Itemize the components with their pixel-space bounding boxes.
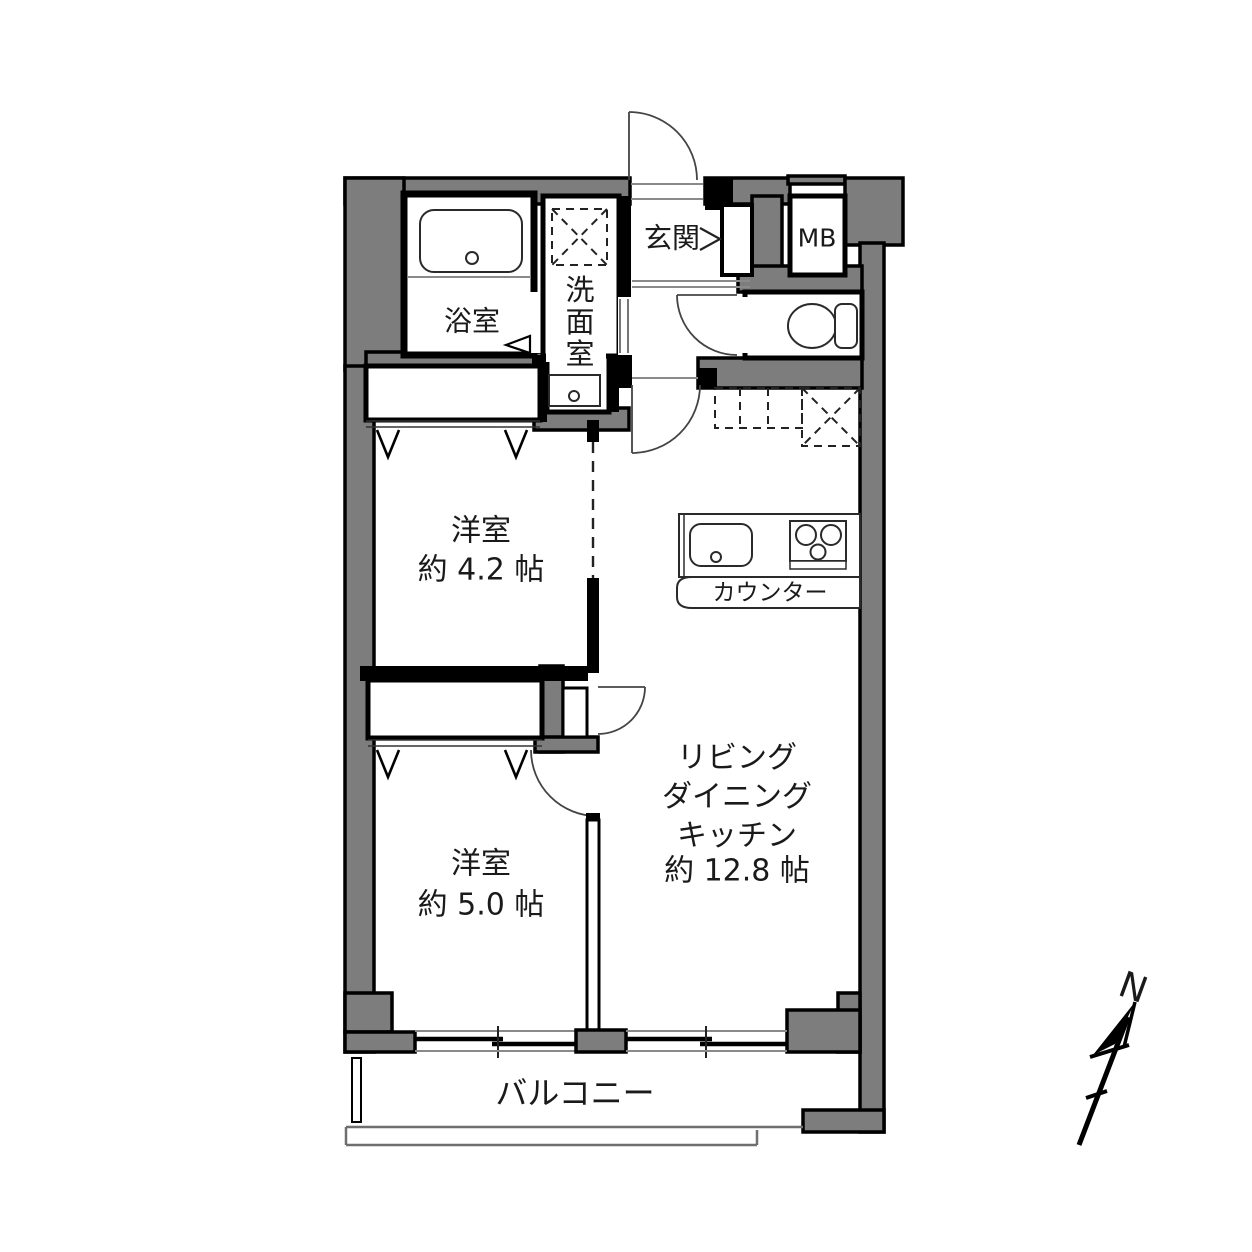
toilet-door-arc	[677, 295, 737, 355]
bedroom2-size: 約 5.0 帖	[418, 888, 545, 923]
washroom-label-char1: 洗	[565, 273, 594, 307]
stove-panel	[790, 561, 846, 569]
kitchen-sink-drain-icon	[711, 552, 721, 562]
wall-balcony-se-block	[803, 1110, 884, 1132]
washroom-label-char3: 室	[565, 337, 594, 371]
wall-toilet-bottom	[698, 358, 862, 388]
wall-corner-block-ne	[845, 178, 903, 245]
toilet-door-gap	[739, 297, 749, 353]
toilet-tank-icon	[835, 304, 857, 348]
kitchen: カウンター	[677, 514, 860, 608]
shoe-cabinet-marker-icon	[700, 228, 720, 250]
bathtub-drain-icon	[466, 252, 478, 264]
entrance-door-arc	[629, 112, 697, 180]
bedroom1-closet-hanger-icon-a	[377, 430, 399, 457]
washbasin-drain-icon	[569, 391, 579, 401]
stove-burner-icon-a	[796, 525, 816, 545]
floor-plan-drawing: 浴室 洗 面 室 玄関 MB	[0, 0, 1252, 1252]
bedroom2-closet-hanger-icon-b	[505, 750, 527, 777]
ldk: カウンター リビング ダイニング キッチン 約 12.8 帖	[632, 378, 860, 889]
bedroom2-closet-outline	[368, 680, 542, 738]
shoe-cabinet-icon	[722, 205, 752, 275]
stove-burner-icon-b	[821, 525, 841, 545]
meter-box: MB	[790, 196, 845, 275]
balcony: バルコニー	[346, 1058, 803, 1145]
ldk-label-line4: 約 12.8 帖	[664, 854, 810, 889]
bedroom2-label: 洋室	[451, 847, 511, 882]
windows	[415, 1026, 787, 1058]
bathroom-label: 浴室	[444, 305, 500, 338]
wall-bottom-left-step2	[345, 1032, 415, 1052]
bedroom1-label: 洋室	[451, 514, 511, 549]
bedroom2-door-arc	[531, 750, 597, 816]
entrance-label: 玄関	[644, 222, 700, 255]
ldk-label-line1: リビング	[677, 741, 797, 776]
wall-bottom-left-step1	[345, 993, 392, 1032]
wall-left-top	[345, 178, 404, 370]
bedroom1-closet-hanger-icon-b	[505, 430, 527, 457]
floor-plan-page: 浴室 洗 面 室 玄関 MB	[0, 0, 1252, 1252]
storage-pocket	[563, 687, 645, 737]
stove-burner-icon-c	[811, 545, 826, 560]
storage-pocket-outline	[563, 688, 587, 737]
room-bathroom: 浴室	[404, 194, 541, 355]
wall-washroom-hall-lower	[617, 355, 632, 388]
north-arrow-crossbar	[1090, 1045, 1129, 1057]
north-arrow-shaft	[1079, 1017, 1128, 1145]
north-arrow: N	[1079, 964, 1153, 1145]
wall-mb-front	[788, 176, 845, 184]
ldk-label-line2: ダイニング	[662, 780, 812, 815]
counter-label: カウンター	[713, 580, 828, 606]
storage-door-arc	[598, 687, 645, 734]
wall-bottom-right-block	[787, 1010, 860, 1052]
kitchen-cupboard-area	[715, 388, 802, 428]
refrigerator-area	[802, 388, 860, 446]
bedroom1-closet-outline	[366, 366, 540, 420]
meter-box-label: MB	[798, 224, 837, 253]
bedroom1-size: 約 4.2 帖	[418, 553, 545, 588]
bedroom2-ldk-partition	[587, 820, 599, 1032]
balcony-label: バルコニー	[495, 1074, 654, 1112]
window-center-pillar	[576, 1030, 626, 1052]
toilet-icon	[788, 304, 836, 348]
bedroom2-closet-hanger-icon-a	[377, 750, 399, 777]
balcony-divider-panel	[352, 1058, 361, 1122]
toilet-room	[677, 292, 862, 358]
bedroom1-partition-lower	[587, 578, 599, 673]
ldk-door-arc	[632, 385, 700, 453]
north-label: N	[1113, 964, 1152, 1012]
washroom-label-char2: 面	[565, 305, 594, 339]
ldk-label-line3: キッチン	[677, 819, 797, 854]
bedroom1-partition-cap-top	[587, 420, 599, 442]
